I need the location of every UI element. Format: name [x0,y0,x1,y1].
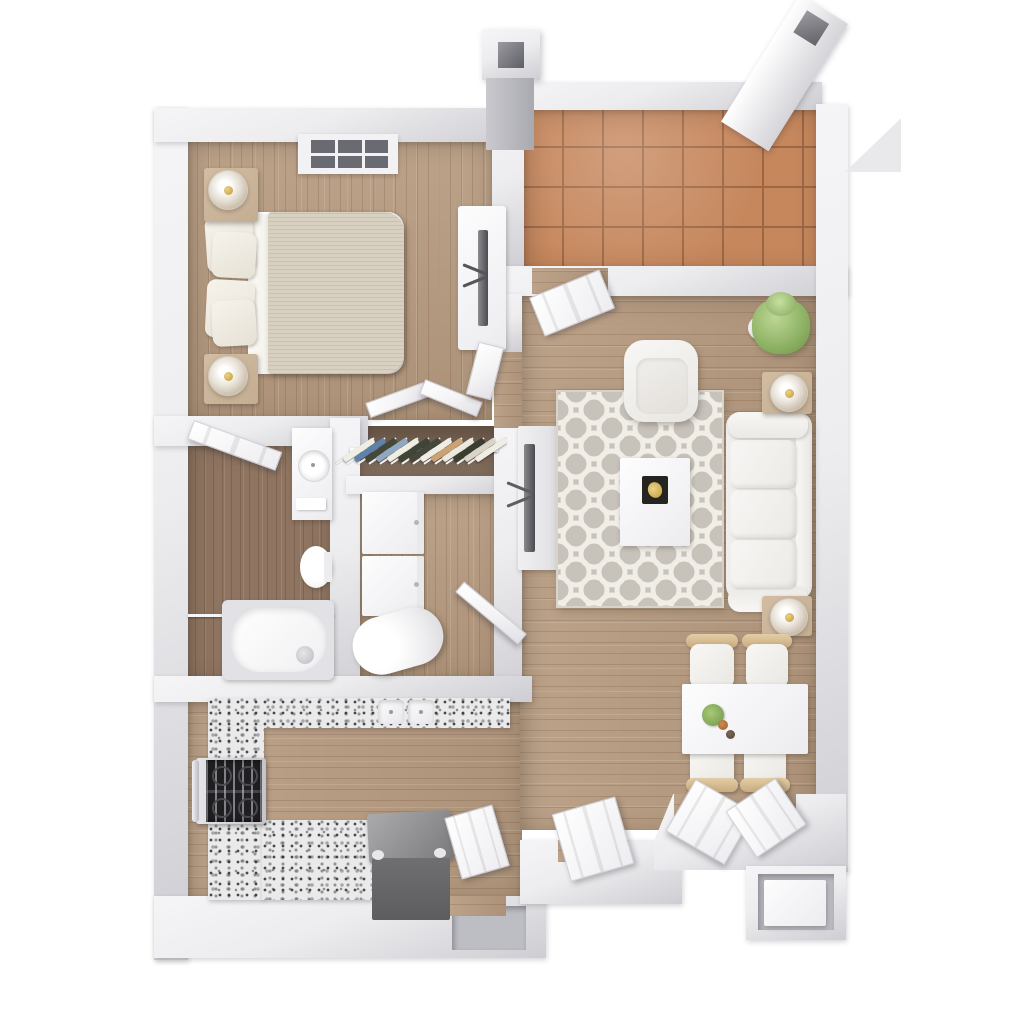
trash-hinge-left [372,850,384,860]
dining-chair-seat-tr [746,644,788,688]
trash-hinge-right [434,848,446,858]
burner-2 [238,766,258,786]
pillow-4 [211,299,257,347]
pillow-2 [211,231,257,279]
toilet-tank [324,552,332,582]
sink-drain-right [419,710,423,714]
chimney-right-vent [793,10,829,46]
burner-3 [212,798,232,818]
chimney-left-vent [498,42,524,68]
centerpiece-decor-1 [718,720,728,730]
table-lamp-bedroom-top [208,170,248,210]
wall-outer-right [816,104,848,872]
storage-box [764,880,826,926]
trash-bin-body [372,858,450,920]
skylight-window-panes [308,140,388,168]
dryer-knob [414,582,419,587]
sink-drain-left [389,710,393,714]
wall-outer-left [154,108,188,960]
dining-table [682,684,808,754]
glass-lamp-bottom [770,598,808,636]
armchair-cushion [636,358,688,414]
parapet-wedge-right [845,108,901,172]
table-lamp-bedroom-bottom [208,356,248,396]
counter-bottom-run [262,820,372,900]
sofa-cushion-3 [730,540,796,588]
sofa-arm-top [728,412,808,438]
sofa-cushion-1 [730,440,796,488]
potted-plant-tuft [766,292,796,316]
burner-1 [212,766,232,786]
sofa-back [796,416,810,596]
tub-faucet [296,646,314,664]
pantry-door-threshold [450,896,506,916]
bathtub-inner [230,606,326,672]
burner-4 [238,798,258,818]
centerpiece-decor-2 [726,730,735,739]
floorplan-canvas [0,0,1024,1024]
sink-drain [311,463,315,467]
bed-duvet [268,212,404,374]
gas-range-handle [192,760,199,822]
sofa-cushion-2 [730,490,796,538]
chimney-left-body [486,78,534,150]
glass-lamp-top [770,374,808,412]
closet-rod [350,448,498,452]
closet-floor [346,426,498,478]
dining-chair-seat-tl [690,644,734,688]
washer-knob [414,520,419,525]
counter-top-run [208,698,510,728]
vanity-towel [296,498,326,510]
